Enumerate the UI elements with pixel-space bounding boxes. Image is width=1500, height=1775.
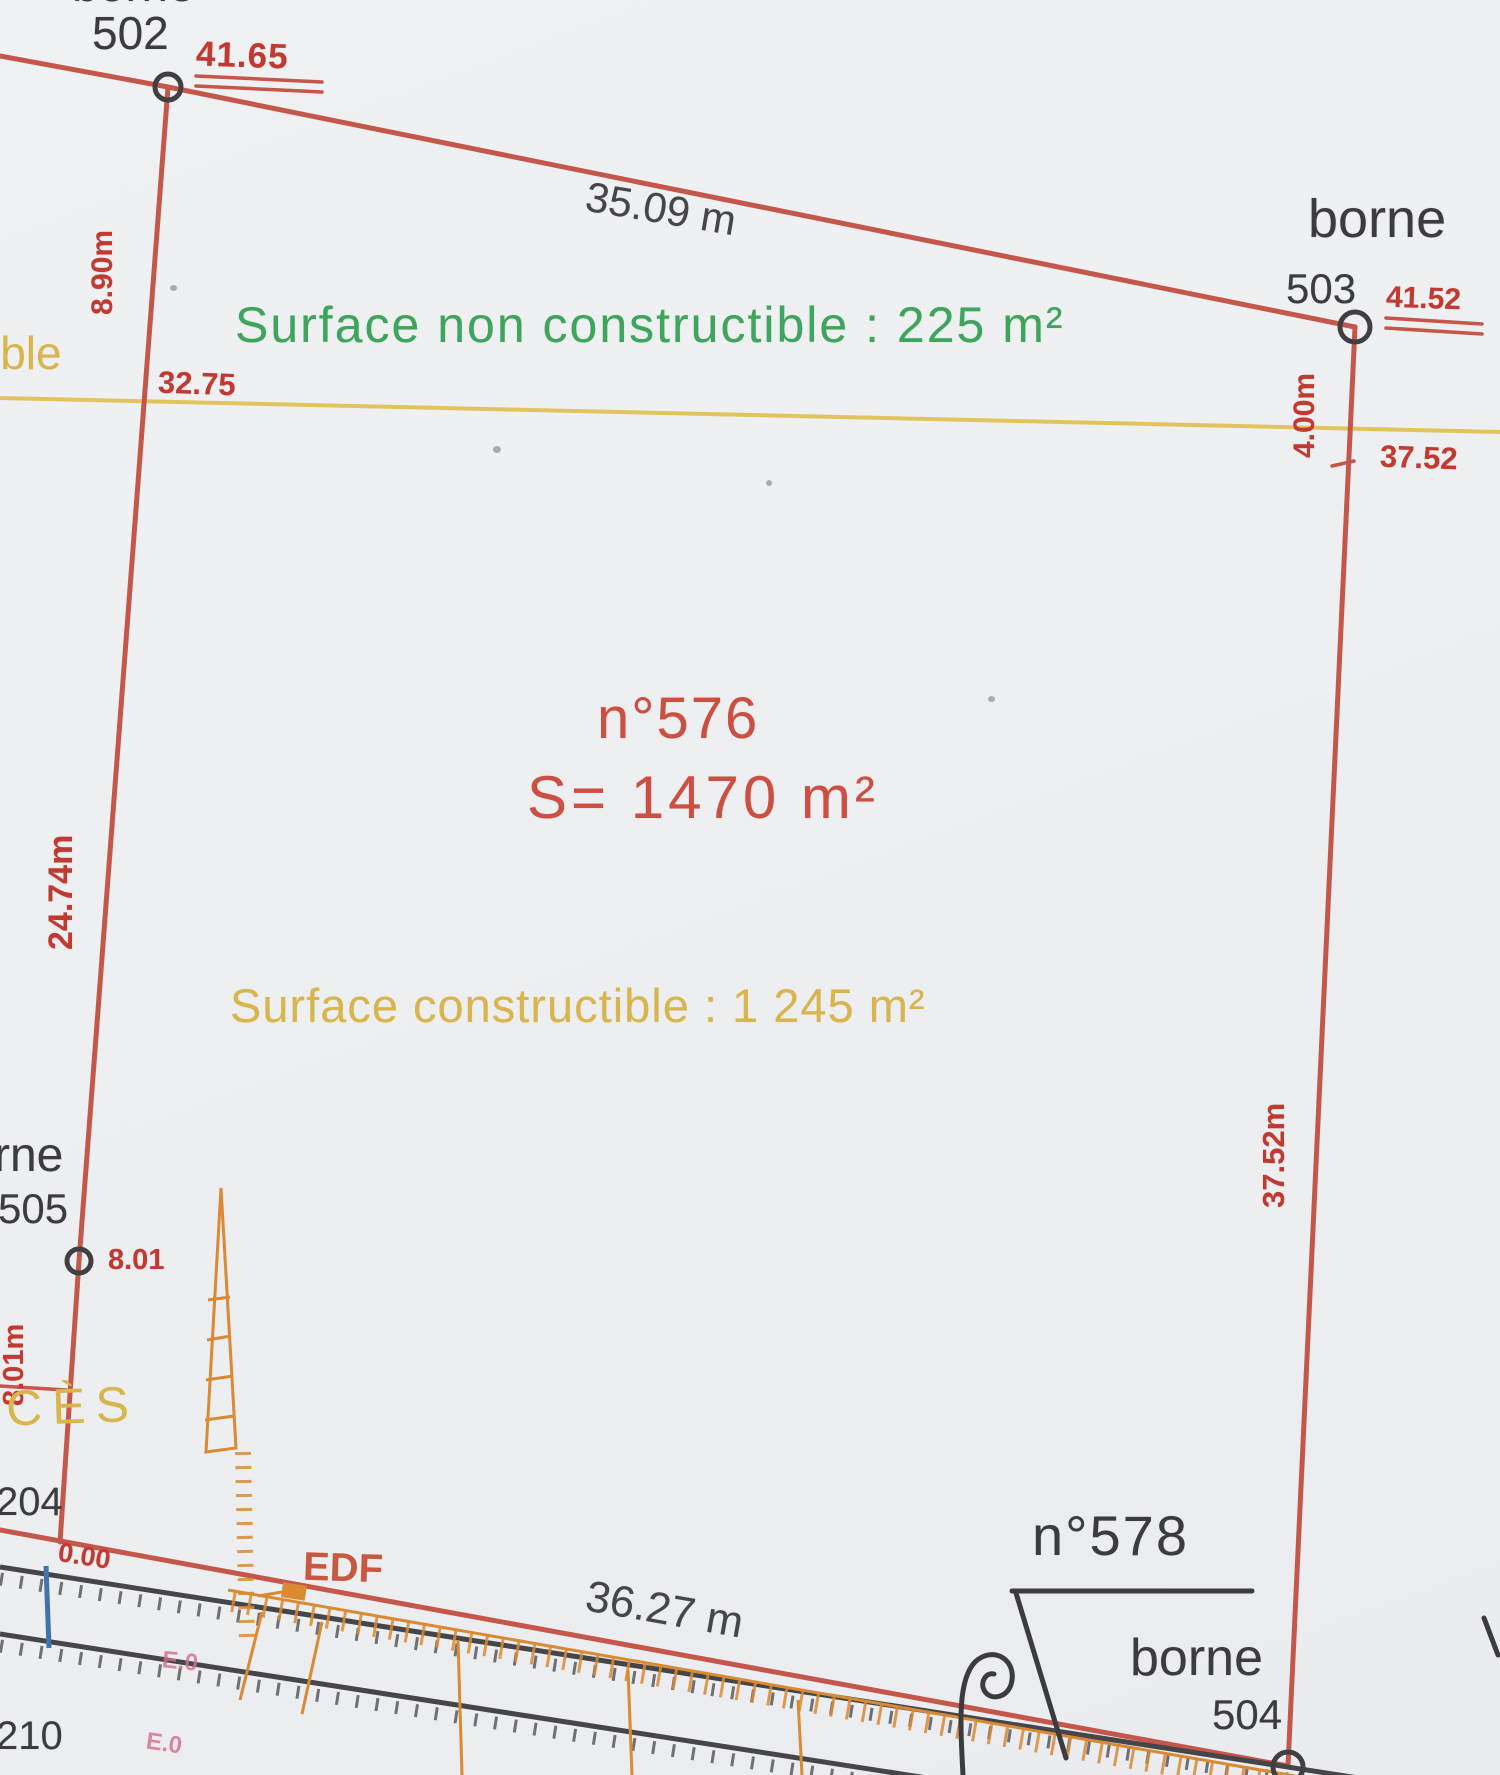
road-hatch-1 bbox=[0, 1579, 1500, 1775]
cadastral-plan: borne 502 41.65 8.90m 35.09 m Surface no… bbox=[0, 0, 1500, 1775]
borne-503-label: borne bbox=[1308, 192, 1446, 246]
level-41-52-underline-2 bbox=[1386, 328, 1482, 334]
scan-speck bbox=[493, 446, 501, 453]
constructible-limit-line bbox=[0, 398, 1500, 432]
level-41-52-underline-1 bbox=[1386, 318, 1482, 324]
borne-505-label: rne bbox=[0, 1132, 63, 1180]
dim-left-point: 32.75 bbox=[157, 367, 236, 401]
parcel-area: S= 1470 m² bbox=[527, 768, 879, 828]
scan-speck bbox=[988, 696, 995, 702]
constructible-label: Surface constructible : 1 245 m² bbox=[230, 982, 926, 1029]
borne-504-number: 504 bbox=[1212, 1694, 1282, 1736]
dim-left-upper: 8.90m bbox=[88, 230, 118, 315]
borne-503-level: 41.52 bbox=[1385, 283, 1461, 316]
dim-access-point: 8.01 bbox=[108, 1246, 164, 1275]
borne-504-label: borne bbox=[1130, 1632, 1263, 1684]
neighbour-constructible-partial: ible bbox=[0, 330, 62, 376]
water-mark bbox=[46, 1566, 49, 1648]
neighbour-parcel-210: 210 bbox=[0, 1716, 63, 1756]
boundary-right bbox=[1288, 327, 1355, 1766]
utility-pink-mark-1: E.0 bbox=[161, 1648, 199, 1676]
borne-503-number: 503 bbox=[1286, 268, 1356, 310]
edge-tick bbox=[1484, 1618, 1498, 1655]
non-constructible-label: Surface non constructible : 225 m² bbox=[235, 300, 1065, 350]
level-41-65-underline-2 bbox=[196, 86, 322, 92]
pole-ladder bbox=[243, 1452, 247, 1640]
fence-diagonals bbox=[240, 1612, 322, 1714]
plan-lines bbox=[0, 0, 1500, 1775]
edf-link bbox=[258, 1592, 282, 1596]
parcel-number: n°576 bbox=[597, 690, 759, 748]
dim-right-mid: 37.52m bbox=[1258, 1103, 1289, 1208]
access-label-partial: CCÈS bbox=[0, 1379, 140, 1435]
dim-left-mid: 24.74m bbox=[44, 835, 78, 950]
neighbour-parcel-204: 204 bbox=[0, 1482, 63, 1522]
level-41-65-underline-1 bbox=[196, 76, 322, 82]
edf-label: EDF bbox=[302, 1547, 383, 1590]
borne-505-number: 505 bbox=[0, 1188, 68, 1230]
scan-speck bbox=[766, 480, 772, 486]
pole-spike bbox=[206, 1188, 236, 1452]
utility-pink-mark-2: E.0 bbox=[145, 1730, 184, 1759]
borne-502-level: 41.65 bbox=[195, 36, 289, 74]
borne-502-number: 502 bbox=[92, 10, 169, 56]
dim-right-upper: 4.00m bbox=[1290, 373, 1320, 458]
dim-right-point: 37.52 bbox=[1379, 441, 1458, 475]
neighbour-parcel-578: n°578 bbox=[1032, 1508, 1189, 1564]
scan-speck bbox=[170, 285, 177, 291]
